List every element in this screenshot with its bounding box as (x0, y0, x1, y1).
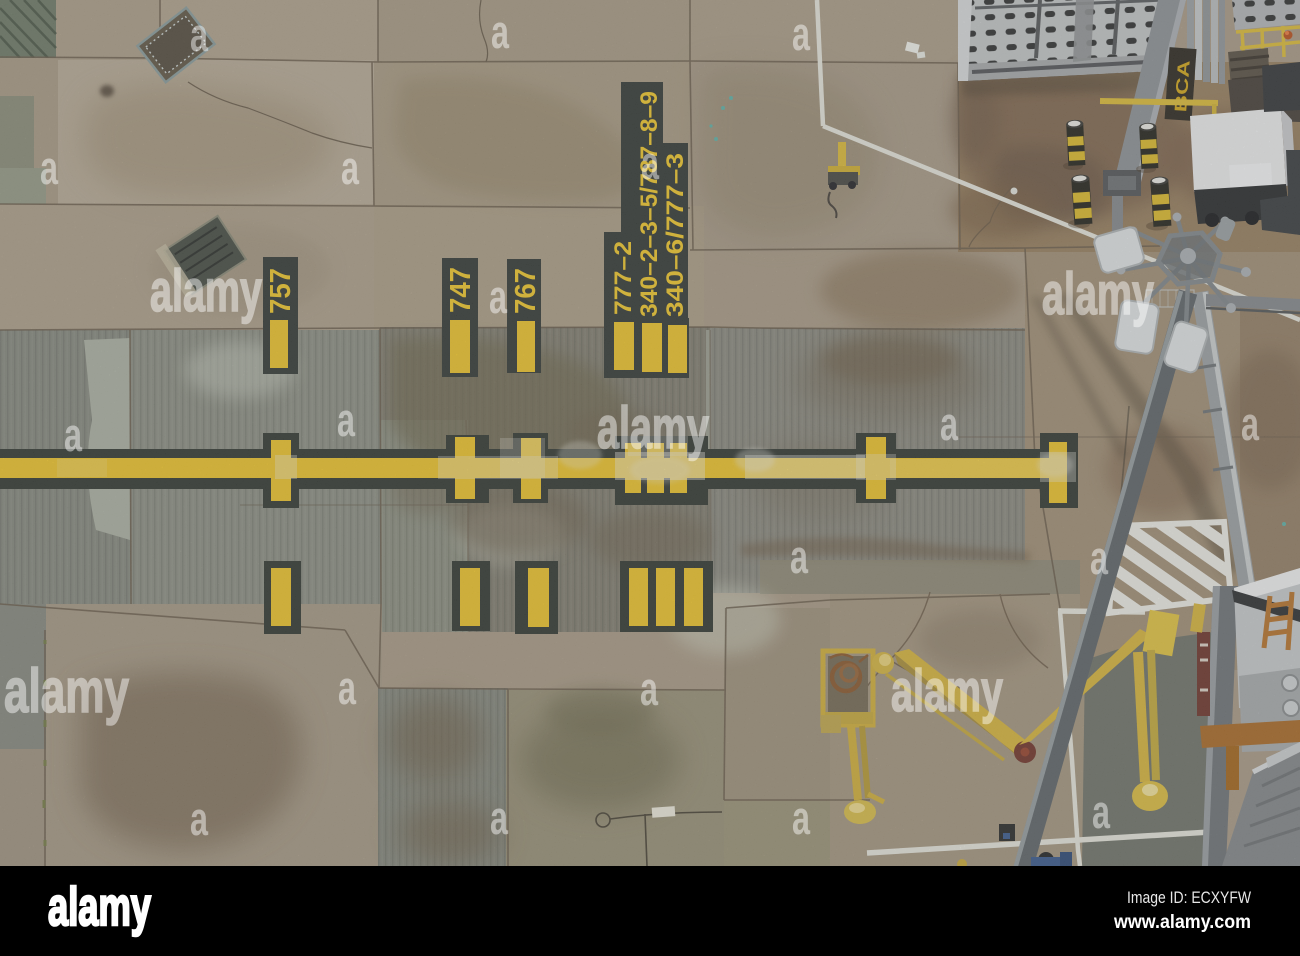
svg-text:alamy: alamy (48, 877, 151, 937)
svg-text:Image ID: ECXYFW: Image ID: ECXYFW (1127, 888, 1251, 907)
svg-text:a: a (190, 792, 209, 845)
svg-text:a: a (40, 141, 59, 194)
svg-text:a: a (790, 530, 809, 583)
svg-text:a: a (1090, 531, 1109, 584)
svg-text:a: a (338, 661, 357, 714)
svg-text:alamy: alamy (4, 657, 129, 726)
svg-text:a: a (190, 8, 209, 61)
svg-text:a: a (1241, 397, 1260, 450)
svg-text:a: a (490, 791, 509, 844)
svg-text:alamy: alamy (150, 258, 262, 324)
svg-text:a: a (489, 270, 508, 323)
svg-text:www.alamy.com: www.alamy.com (1113, 912, 1251, 933)
svg-text:a: a (792, 791, 811, 844)
svg-text:alamy: alamy (597, 395, 709, 461)
svg-text:a: a (640, 662, 659, 715)
svg-text:a: a (64, 408, 83, 461)
svg-text:a: a (792, 7, 811, 60)
svg-text:a: a (491, 5, 510, 58)
svg-text:a: a (341, 141, 360, 194)
svg-text:a: a (1092, 785, 1111, 838)
svg-text:a: a (940, 397, 959, 450)
svg-text:alamy: alamy (1042, 261, 1154, 327)
svg-text:alamy: alamy (891, 658, 1003, 724)
svg-text:a: a (641, 136, 660, 189)
svg-text:a: a (337, 393, 356, 446)
